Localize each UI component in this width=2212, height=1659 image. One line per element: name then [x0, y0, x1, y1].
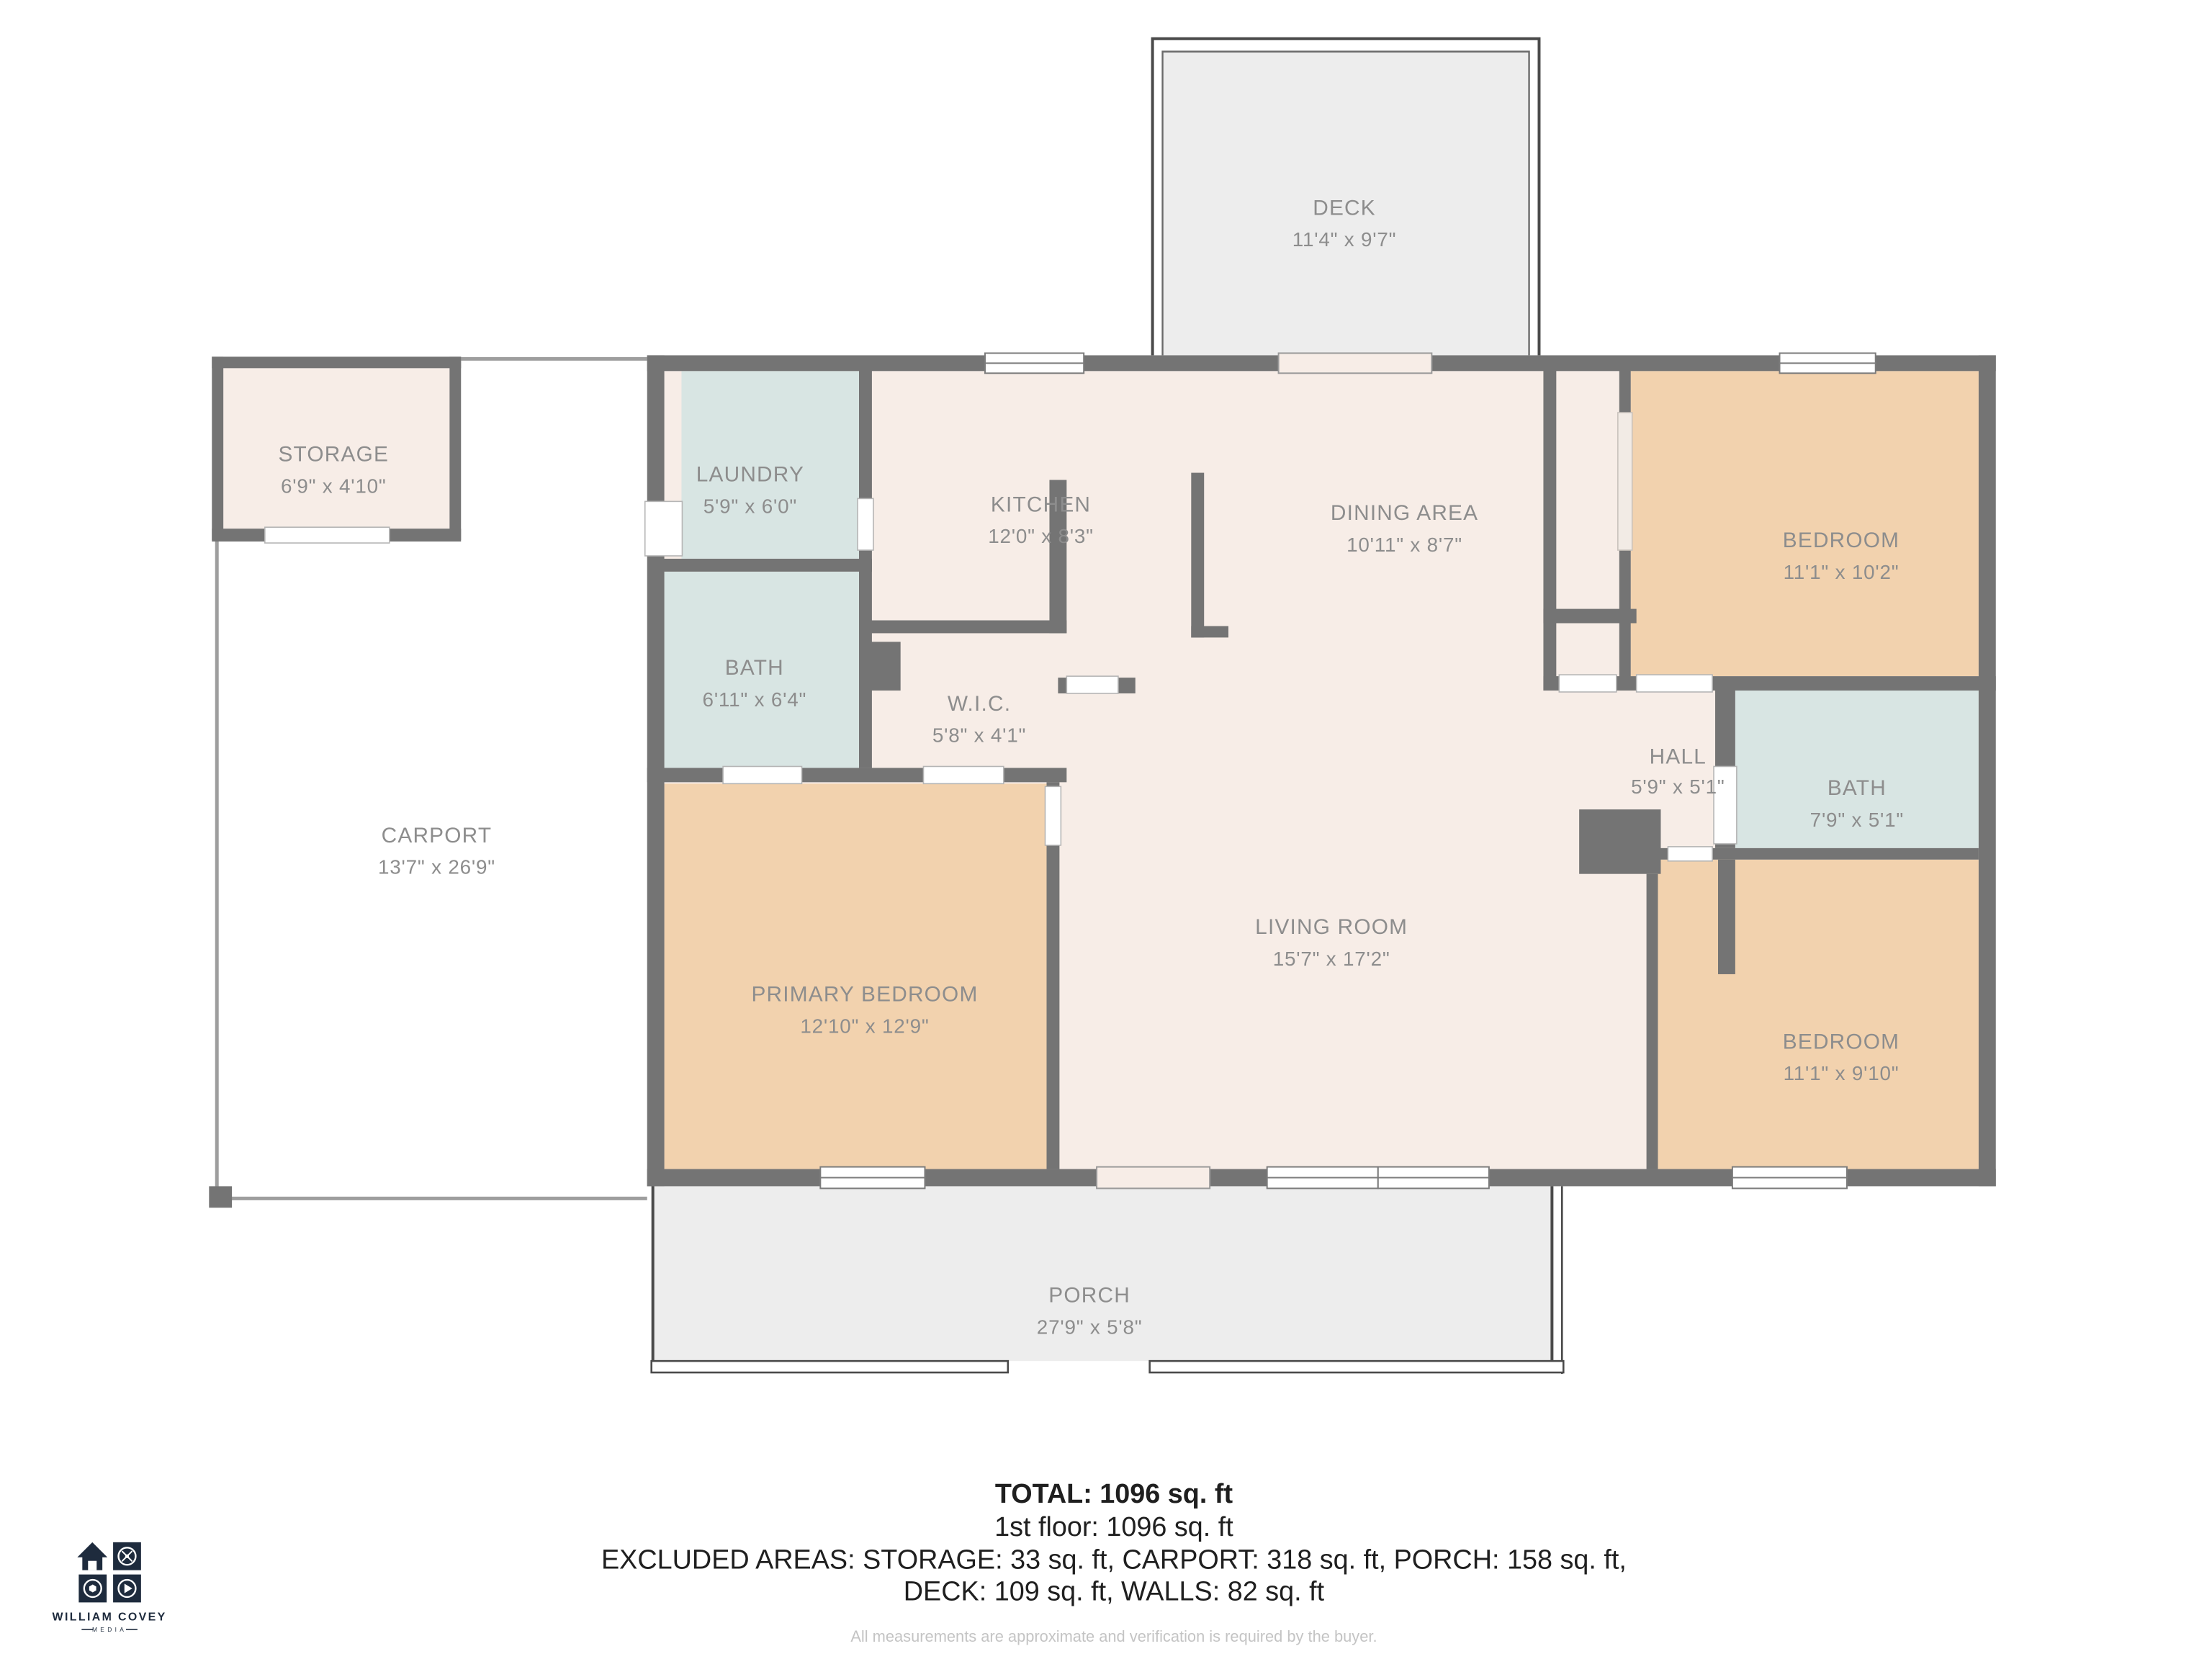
wic-door: [923, 766, 1003, 783]
dining-label: DINING AREA: [1331, 501, 1478, 525]
living-room-label: LIVING ROOM: [1255, 915, 1408, 939]
dining-dims: 10'11" x 8'7": [1346, 534, 1462, 556]
storage-dims: 6'9" x 4'10": [281, 475, 387, 497]
bedroom-br-dims: 11'1" x 9'10": [1784, 1062, 1899, 1084]
bedroom-tr-label: BEDROOM: [1783, 529, 1899, 552]
laundry-dims: 5'9" x 6'0": [703, 495, 797, 517]
bath-left-label: BATH: [725, 656, 784, 680]
porch-edge-left: [652, 1361, 1008, 1372]
living-room-window-left: [1267, 1167, 1378, 1189]
bedroom-br-window: [1732, 1167, 1847, 1189]
primary-bedroom-label: PRIMARY BEDROOM: [751, 983, 978, 1007]
kitchen-label: KITCHEN: [991, 493, 1091, 516]
wic-label: W.I.C.: [948, 692, 1011, 716]
deck-sliding-door: [1279, 353, 1432, 373]
kitchen-dims: 12'0" x 8'3": [988, 525, 1094, 547]
carport-label: CARPORT: [382, 824, 493, 848]
primary-bedroom-dims: 12'10" x 12'9": [800, 1015, 929, 1038]
bedroom-br-floor: [1658, 860, 1979, 1169]
laundry-door: [858, 498, 873, 550]
bedroom-br-label: BEDROOM: [1783, 1030, 1899, 1053]
bath-right-dims: 7'9" x 5'1": [1810, 809, 1904, 831]
living-room-window-right: [1378, 1167, 1489, 1189]
porch-dims: 27'9" x 5'8": [1037, 1316, 1143, 1338]
porch-area: [652, 1186, 1564, 1374]
logo-tagline: MEDIA: [92, 1626, 127, 1633]
primary-bedroom-window: [820, 1167, 925, 1189]
carport-post: [209, 1186, 232, 1208]
primary-bedroom-door: [1045, 786, 1061, 845]
porch-edge-right: [1150, 1361, 1564, 1372]
bedroom-br-door: [1668, 847, 1712, 861]
hall-label: HALL: [1650, 745, 1707, 768]
first-floor-text: 1st floor: 1096 sq. ft: [994, 1512, 1233, 1542]
deck-label: DECK: [1313, 196, 1376, 220]
primary-bedroom-floor: [665, 783, 1047, 1169]
bath-left-dims: 6'11" x 6'4": [703, 688, 807, 711]
footer-disclaimer: All measurements are approximate and ver…: [850, 1627, 1377, 1645]
logo: WILLIAM COVEY MEDIA: [53, 1542, 167, 1633]
bedroom-tr-closet-door: [1618, 413, 1632, 550]
laundry-label: LAUNDRY: [696, 463, 804, 487]
bath-right-label: BATH: [1827, 776, 1887, 800]
hall-closet-door: [1559, 675, 1617, 692]
bath-left-door: [723, 766, 801, 783]
footer: TOTAL: 1096 sq. ft 1st floor: 1096 sq. f…: [601, 1479, 1627, 1645]
porch-label: PORCH: [1048, 1284, 1130, 1308]
wic-dims: 5'8" x 4'1": [932, 724, 1026, 747]
camera-icon: [78, 1575, 107, 1603]
floor-plan: DECK 11'4" x 9'7" STORAGE 6'9" x 4'10" L…: [0, 0, 2212, 1659]
excluded-areas-line2: DECK: 109 sq. ft, WALLS: 82 sq. ft: [904, 1576, 1325, 1606]
total-area-text: TOTAL: 1096 sq. ft: [995, 1479, 1233, 1509]
logo-name: WILLIAM COVEY: [53, 1611, 167, 1623]
bedroom-tr-dims: 11'1" x 10'2": [1784, 561, 1899, 583]
side-door: [645, 501, 683, 556]
passage-door: [1066, 676, 1118, 693]
drone-icon: [113, 1542, 141, 1570]
bedroom-tr-window: [1780, 353, 1876, 373]
play-icon: [113, 1575, 141, 1603]
excluded-areas-line1: EXCLUDED AREAS: STORAGE: 33 sq. ft, CARP…: [601, 1545, 1627, 1575]
bedroom-tr-door: [1637, 675, 1712, 692]
house-icon-door: [88, 1561, 96, 1570]
kitchen-window: [985, 353, 1084, 373]
bedroom-tr-floor: [1631, 371, 1979, 676]
deck-dims: 11'4" x 9'7": [1292, 228, 1397, 251]
carport-dims: 13'7" x 26'9": [378, 856, 495, 878]
storage-label: STORAGE: [278, 443, 389, 467]
hall-dims: 5'9" x 5'1": [1631, 775, 1725, 798]
living-room-dims: 15'7" x 17'2": [1273, 948, 1390, 970]
front-door: [1097, 1167, 1210, 1189]
storage-door: [265, 527, 390, 543]
